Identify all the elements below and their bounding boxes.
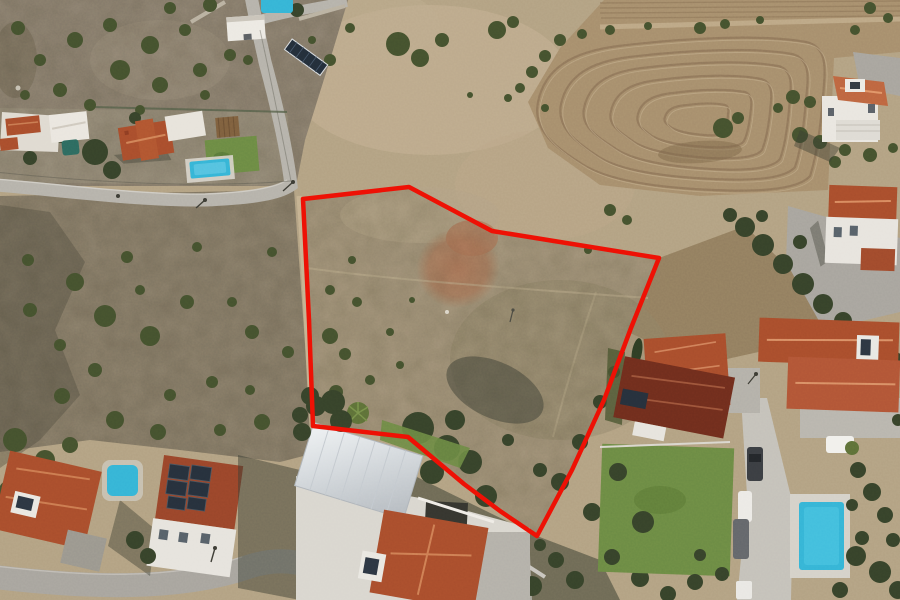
aerial-photo-canvas [0, 0, 900, 600]
photo-grain [0, 0, 900, 600]
aerial-photo [0, 0, 900, 600]
